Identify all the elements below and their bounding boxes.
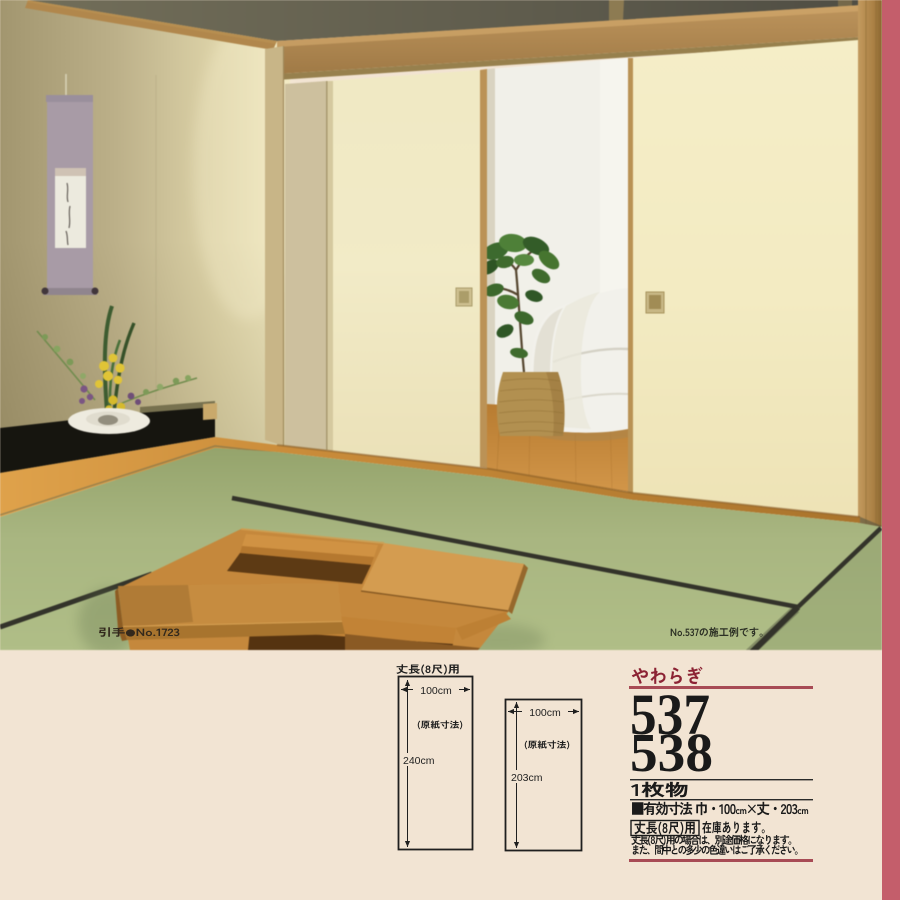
svg-text:240cm: 240cm — [403, 755, 435, 767]
svg-text:100cm: 100cm — [420, 685, 452, 697]
svg-text:100cm: 100cm — [529, 707, 561, 719]
svg-text:203cm: 203cm — [511, 772, 543, 784]
svg-text:538: 538 — [630, 722, 713, 783]
